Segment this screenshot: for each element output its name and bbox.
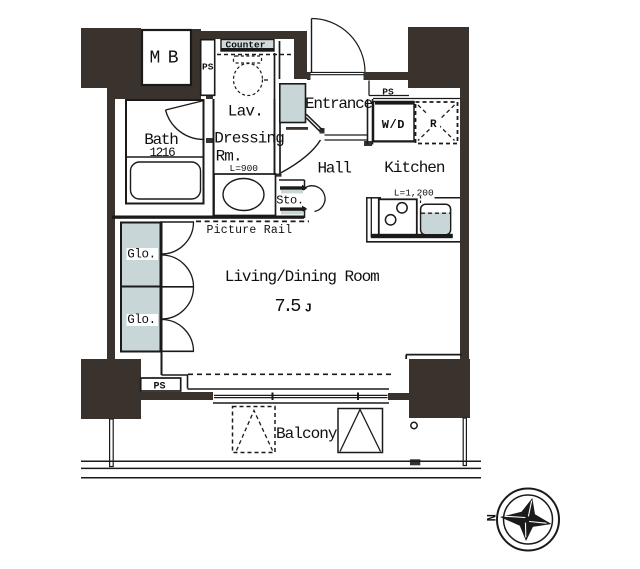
svg-text:Picture Rail: Picture Rail — [207, 224, 293, 237]
svg-text:J: J — [305, 302, 312, 316]
svg-text:Balcony: Balcony — [276, 425, 338, 443]
svg-text:Glo.: Glo. — [127, 248, 155, 262]
svg-text:L=900: L=900 — [230, 163, 259, 174]
svg-text:7.5: 7.5 — [275, 296, 301, 317]
svg-text:N: N — [486, 514, 500, 522]
svg-text:PS: PS — [154, 382, 166, 393]
svg-text:Counter: Counter — [226, 40, 266, 51]
svg-text:Kitchen: Kitchen — [384, 159, 445, 177]
svg-text:L=1,200: L=1,200 — [394, 187, 434, 198]
svg-text:PS: PS — [202, 62, 214, 73]
svg-text:Glo.: Glo. — [127, 313, 155, 327]
svg-text:Lav.: Lav. — [228, 103, 263, 121]
svg-text:Hall: Hall — [318, 160, 352, 178]
svg-text:1216: 1216 — [150, 146, 176, 160]
svg-text:PS: PS — [382, 86, 394, 97]
svg-text:R: R — [430, 119, 437, 131]
svg-text:Sto.: Sto. — [276, 194, 304, 208]
svg-text:W/D: W/D — [382, 118, 405, 132]
svg-text:MB: MB — [150, 49, 187, 69]
svg-text:Living/Dining Room: Living/Dining Room — [225, 268, 379, 286]
svg-text:Entrance: Entrance — [305, 95, 372, 113]
